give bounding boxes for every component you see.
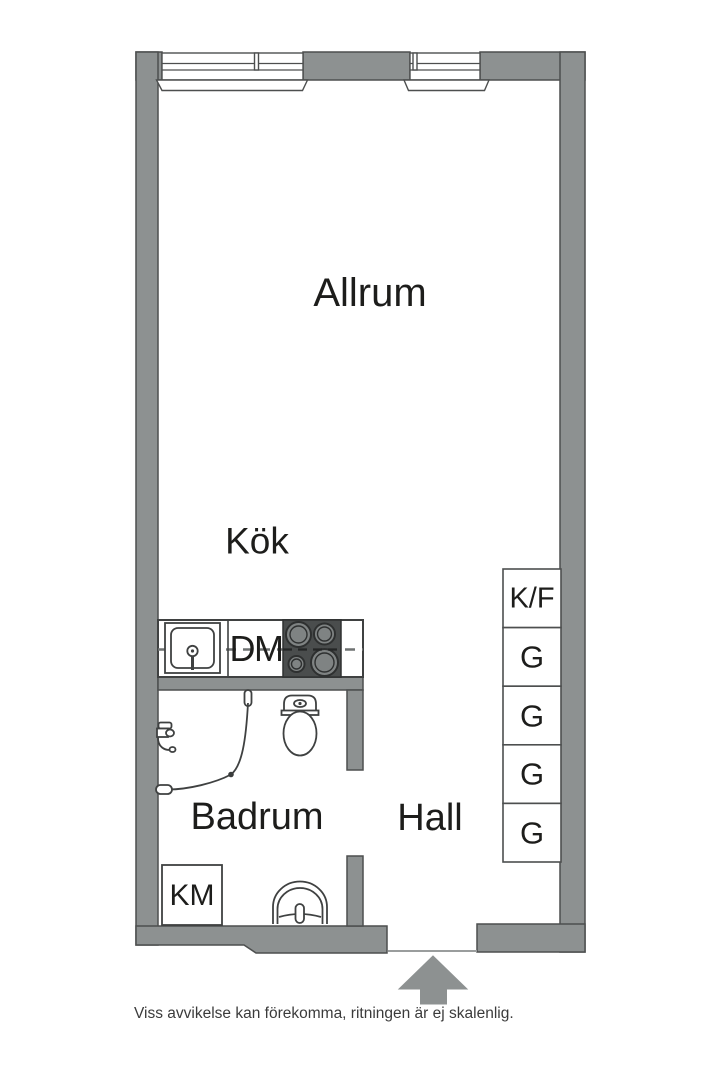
room-label-hall: Hall bbox=[397, 799, 462, 837]
closet-label-g: G bbox=[520, 759, 544, 790]
room-label-badrum: Badrum bbox=[190, 798, 323, 836]
faucet-icon bbox=[157, 723, 176, 753]
shower-curtain-icon bbox=[156, 690, 252, 794]
entrance-arrow-icon bbox=[399, 956, 467, 1004]
closet-label-kf: K/F bbox=[509, 585, 554, 614]
window-mullion bbox=[255, 53, 259, 70]
room-label-allrum: Allrum bbox=[313, 273, 426, 313]
appliance-label-dishwasher: DM bbox=[230, 631, 283, 667]
bathroom-wall-upper bbox=[347, 690, 363, 770]
kitchen-bathroom-wall bbox=[158, 677, 363, 690]
closet-label-g: G bbox=[520, 642, 544, 673]
bathroom-wall-lower bbox=[347, 856, 363, 926]
room-label-kok: Kök bbox=[225, 523, 289, 560]
top-wall-mid-segment bbox=[303, 52, 410, 80]
window-reveal bbox=[157, 80, 308, 91]
kitchen-sink bbox=[165, 623, 220, 673]
right-wall bbox=[560, 52, 585, 952]
left-wall bbox=[136, 52, 158, 945]
window-left bbox=[157, 53, 308, 91]
floorplan-canvas: Allrum Kök Badrum Hall DM KM K/F G G G G… bbox=[0, 0, 720, 1080]
appliance-label-washing-machine: KM bbox=[170, 881, 215, 911]
stove bbox=[283, 620, 341, 677]
closet-label-g: G bbox=[520, 701, 544, 732]
window-right bbox=[404, 53, 489, 91]
toilet-icon bbox=[282, 696, 319, 756]
bottom-wall-left bbox=[136, 926, 387, 953]
bottom-wall-right bbox=[477, 924, 585, 952]
washbasin-icon bbox=[273, 882, 327, 924]
window-reveal bbox=[404, 80, 489, 91]
window-mullion bbox=[413, 53, 417, 70]
closet-label-g: G bbox=[520, 818, 544, 849]
floorplan-drawing bbox=[0, 0, 720, 1080]
disclaimer-text: Viss avvikelse kan förekomma, ritningen … bbox=[134, 1003, 514, 1025]
